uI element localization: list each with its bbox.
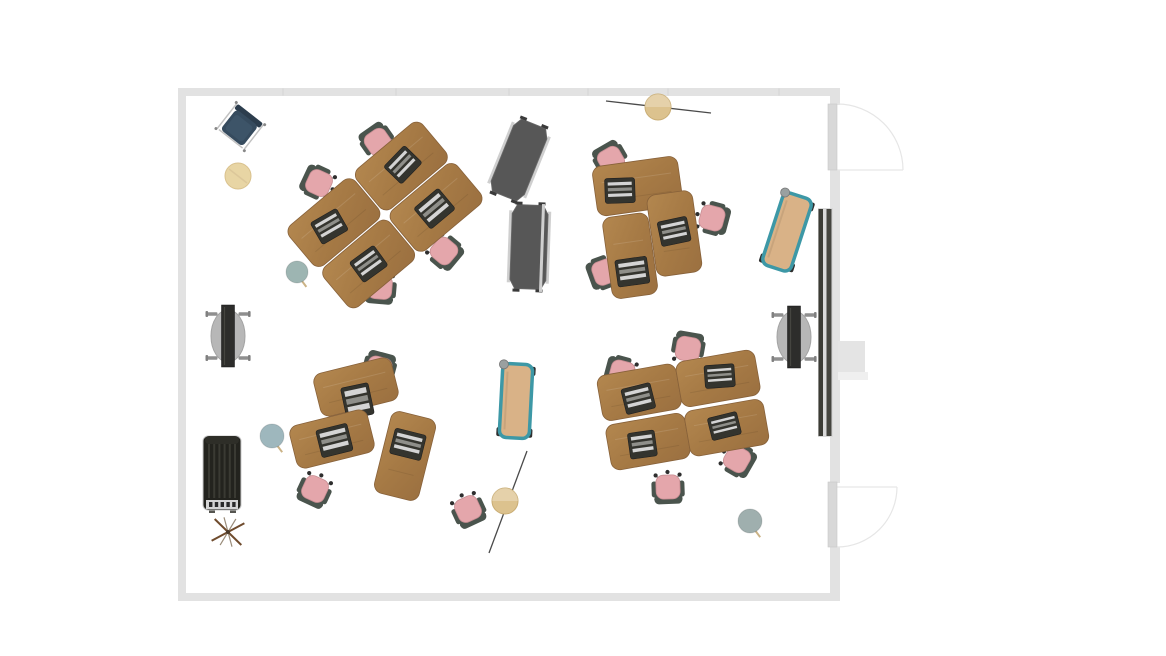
flip-table-west[interactable]	[206, 305, 251, 367]
storage-locker[interactable]	[203, 436, 241, 513]
door-south	[828, 482, 897, 547]
door-leaf	[828, 482, 837, 547]
wall-column	[838, 341, 868, 380]
media-wall	[818, 208, 833, 437]
whiteboard-cart-center[interactable]	[496, 360, 537, 439]
wall-right-lower	[830, 547, 840, 601]
door-north	[828, 104, 903, 170]
divider-panel-south[interactable]	[506, 201, 551, 292]
wall-left	[178, 88, 186, 601]
door-swing-arc	[837, 487, 897, 547]
laptop-icon	[605, 178, 636, 204]
door-swing-arc	[837, 104, 903, 170]
flip-table-east[interactable]	[772, 306, 817, 368]
laptop-icon	[704, 364, 736, 389]
door-leaf	[828, 104, 837, 170]
wall-right-upper	[830, 88, 840, 105]
laptop-icon	[627, 430, 657, 460]
pouf[interactable]	[225, 163, 251, 189]
wall-bottom	[178, 593, 840, 601]
floor-plan	[0, 0, 1166, 656]
floor-plan-page	[0, 0, 1166, 656]
laptop-icon	[615, 256, 650, 287]
task-chair-se-4[interactable]	[651, 469, 685, 504]
